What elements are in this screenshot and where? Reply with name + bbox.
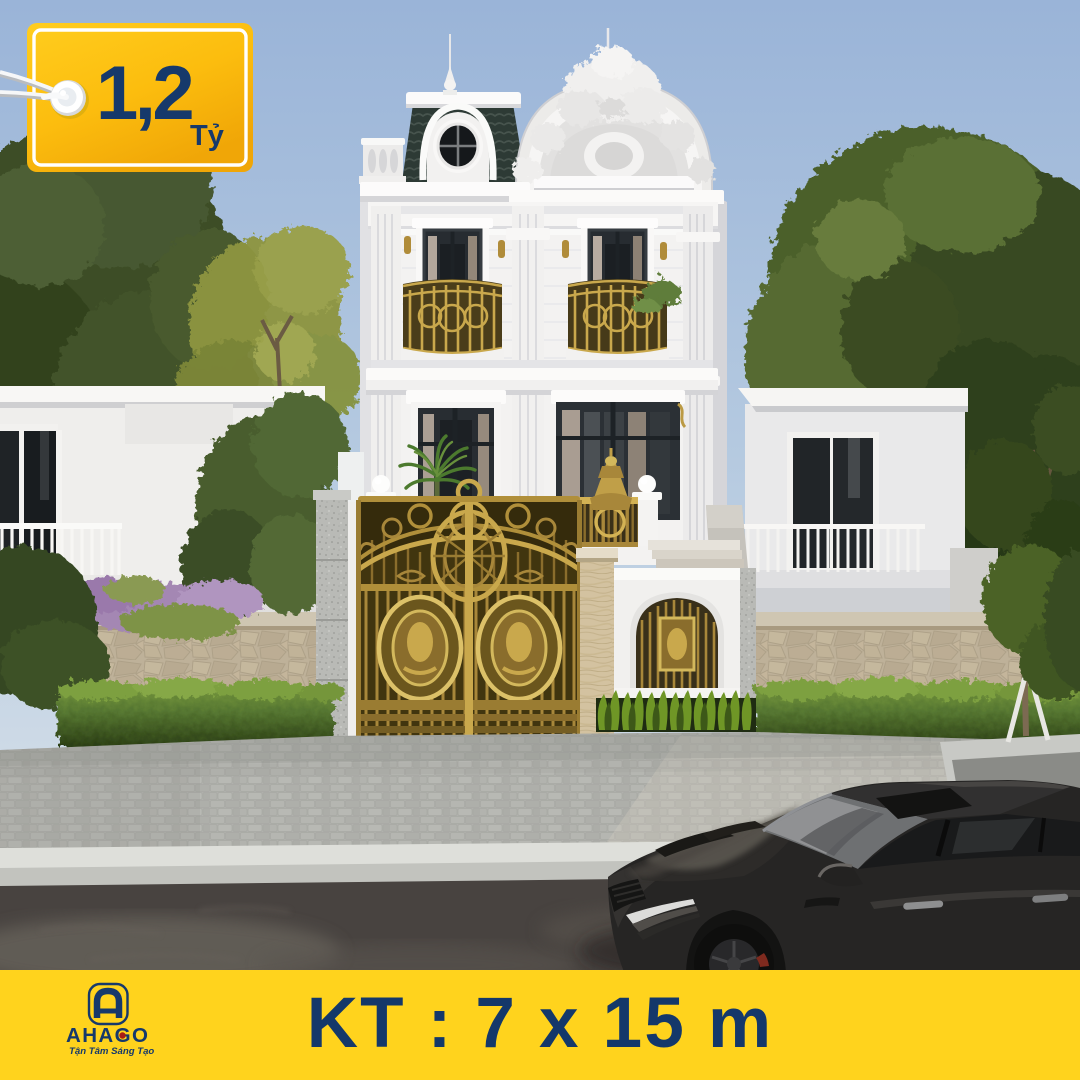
svg-text:KT : 7 x 15 m: KT : 7 x 15 m — [307, 984, 774, 1063]
svg-text:Tận Tâm Sáng Tạo: Tận Tâm Sáng Tạo — [69, 1046, 154, 1057]
svg-text:AHAGO: AHAGO — [66, 1024, 149, 1047]
svg-text:Tỷ: Tỷ — [190, 120, 224, 152]
svg-text:1,2: 1,2 — [96, 51, 192, 136]
